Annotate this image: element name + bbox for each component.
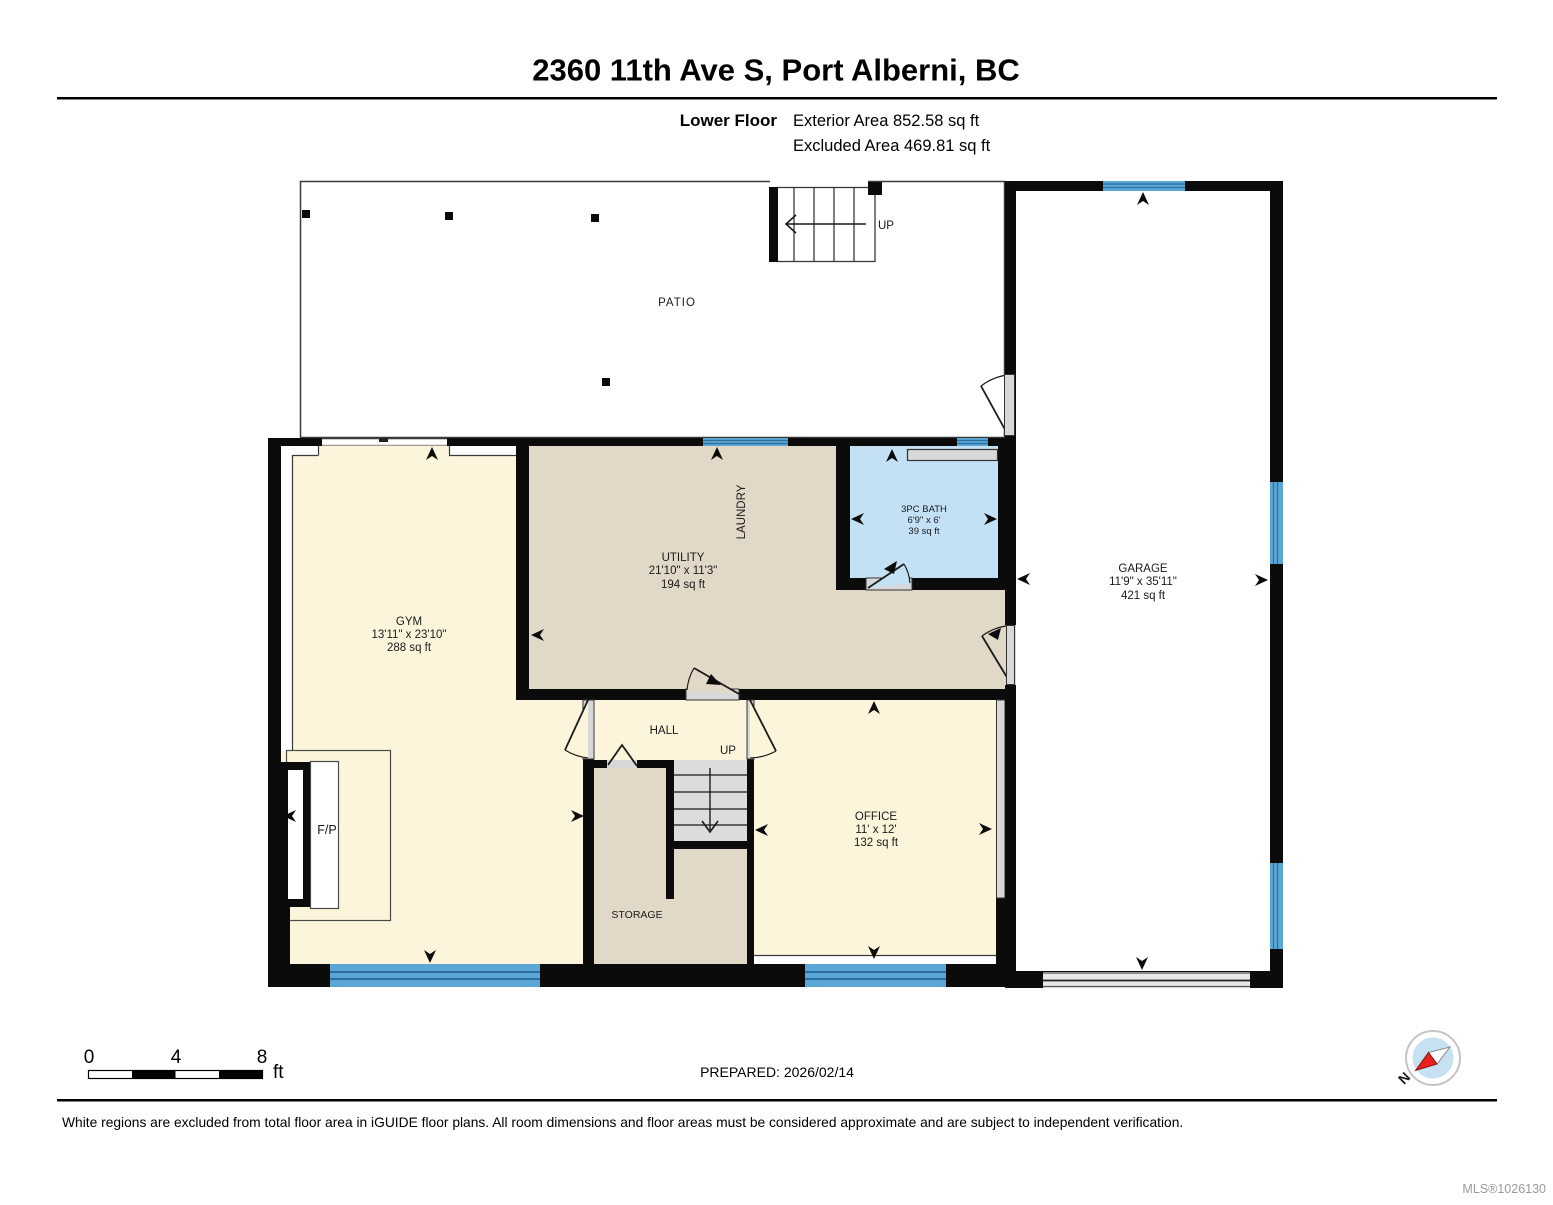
svg-text:Exterior Area 852.58 sq ft: Exterior Area 852.58 sq ft: [793, 112, 980, 130]
svg-text:UP: UP: [878, 220, 894, 232]
svg-text:F/P: F/P: [317, 823, 336, 837]
svg-text:LAUNDRY: LAUNDRY: [736, 484, 748, 539]
svg-text:UP: UP: [720, 745, 736, 757]
svg-text:PATIO: PATIO: [658, 297, 696, 309]
svg-text:GYM: GYM: [396, 616, 422, 628]
svg-text:6'9" x 6': 6'9" x 6': [908, 515, 941, 526]
svg-text:UTILITY: UTILITY: [662, 552, 705, 564]
svg-text:STORAGE: STORAGE: [611, 909, 662, 921]
svg-text:HALL: HALL: [650, 725, 679, 737]
svg-text:4: 4: [171, 1047, 182, 1068]
svg-text:421 sq ft: 421 sq ft: [1121, 590, 1166, 602]
svg-text:2360 11th Ave S, Port Alberni,: 2360 11th Ave S, Port Alberni, BC: [532, 53, 1020, 88]
svg-text:Lower Floor: Lower Floor: [680, 111, 778, 130]
svg-text:11'9" x 35'11": 11'9" x 35'11": [1109, 576, 1177, 588]
svg-text:3PC BATH: 3PC BATH: [901, 504, 947, 515]
svg-text:Excluded Area 469.81 sq ft: Excluded Area 469.81 sq ft: [793, 137, 991, 155]
svg-text:GARAGE: GARAGE: [1118, 563, 1168, 575]
svg-text:0: 0: [84, 1047, 95, 1068]
svg-text:13'11" x 23'10": 13'11" x 23'10": [371, 629, 446, 641]
svg-text:OFFICE: OFFICE: [855, 811, 897, 823]
svg-text:21'10" x 11'3": 21'10" x 11'3": [649, 565, 718, 577]
svg-text:11' x 12': 11' x 12': [855, 824, 896, 836]
svg-text:White regions are excluded fro: White regions are excluded from total fl…: [62, 1115, 1183, 1130]
svg-text:MLS®1026130: MLS®1026130: [1462, 1182, 1546, 1196]
svg-text:194 sq ft: 194 sq ft: [661, 579, 706, 591]
svg-text:132 sq ft: 132 sq ft: [854, 837, 899, 849]
svg-text:39 sq ft: 39 sq ft: [908, 526, 940, 537]
svg-text:ft: ft: [273, 1062, 284, 1083]
svg-text:288 sq ft: 288 sq ft: [387, 642, 432, 654]
svg-text:8: 8: [257, 1047, 268, 1068]
svg-text:PREPARED: 2026/02/14: PREPARED: 2026/02/14: [700, 1064, 854, 1080]
